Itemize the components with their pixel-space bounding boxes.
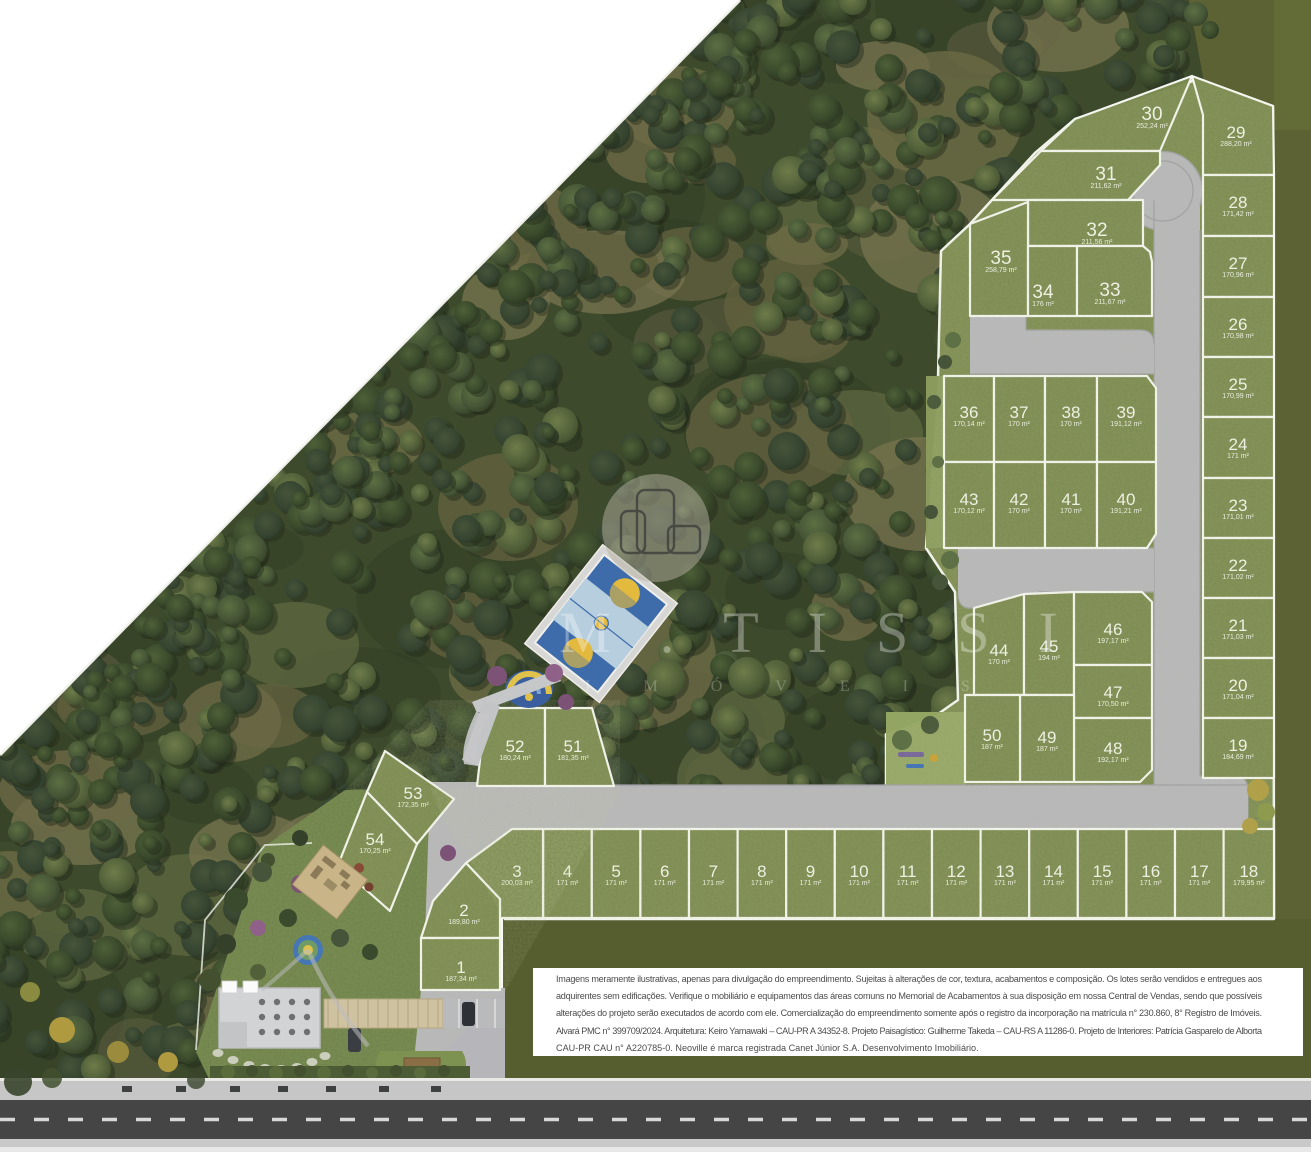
svg-text:M.TISSI: M.TISSI [559, 600, 1107, 665]
svg-text:adquirentes sem edificações. V: adquirentes sem edificações. Verifique o… [556, 991, 1262, 1001]
svg-text:IMÓVEIS: IMÓVEIS [585, 676, 1023, 695]
svg-text:CAU-PR CAU n° A220785-0. Neovi: CAU-PR CAU n° A220785-0. Neoville é marc… [556, 1043, 979, 1053]
svg-text:alterações do projeto serão ex: alterações do projeto serão executados d… [556, 1008, 1262, 1018]
svg-text:Imagens meramente ilustrativas: Imagens meramente ilustrativas, apenas p… [556, 974, 1262, 984]
svg-text:Alvará PMC n° 399709/2024. Arq: Alvará PMC n° 399709/2024. Arquitetura: … [556, 1026, 1263, 1036]
